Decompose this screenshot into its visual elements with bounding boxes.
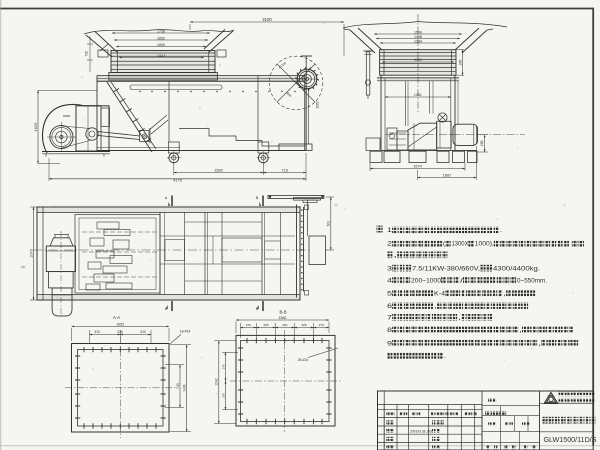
svg-text:200~1000: 200~1000	[411, 278, 441, 285]
svg-text:270: 270	[246, 323, 251, 327]
svg-text:1: 1	[387, 227, 393, 234]
svg-text:7: 7	[387, 315, 393, 322]
svg-text:6: 6	[387, 303, 393, 310]
svg-text:A-A: A-A	[113, 315, 120, 320]
svg-text:718: 718	[85, 51, 89, 57]
svg-text:1738: 1738	[157, 29, 165, 33]
svg-text:.: .	[444, 354, 446, 360]
svg-text:B: B	[256, 196, 259, 200]
svg-text:1583: 1583	[214, 169, 222, 173]
svg-text:310: 310	[94, 330, 100, 334]
svg-text:320: 320	[282, 323, 287, 327]
svg-text:1600: 1600	[157, 43, 165, 47]
svg-text:B-B: B-B	[280, 310, 287, 315]
svg-text:1294: 1294	[414, 39, 422, 43]
svg-text:1242: 1242	[215, 378, 219, 386]
svg-text:/: /	[460, 278, 463, 285]
svg-text:330: 330	[117, 330, 123, 334]
svg-text:18-#24: 18-#24	[180, 330, 191, 334]
svg-text:740: 740	[176, 383, 180, 389]
svg-text:715: 715	[281, 169, 287, 173]
svg-text:1652: 1652	[157, 36, 165, 40]
svg-text:328: 328	[301, 323, 306, 327]
svg-text:310: 310	[140, 330, 146, 334]
svg-text:#1300: #1300	[278, 61, 287, 69]
svg-text:1301: 1301	[414, 58, 422, 62]
svg-text:270: 270	[221, 392, 225, 397]
svg-text:1625: 1625	[33, 122, 38, 132]
svg-text:1361: 1361	[414, 93, 422, 97]
svg-text:1574: 1574	[413, 165, 421, 169]
svg-text:2010.8.26: 2010.8.26	[410, 430, 432, 434]
svg-text:#850: #850	[285, 91, 293, 99]
svg-text:A: A	[165, 196, 168, 200]
svg-text:5: 5	[387, 291, 393, 298]
svg-text:2: 2	[387, 241, 393, 248]
svg-text:(: (	[443, 242, 445, 248]
svg-text:8: 8	[387, 327, 393, 334]
svg-text:1436: 1436	[183, 384, 187, 392]
svg-text:7.5/11KW-380/660V,: 7.5/11KW-380/660V,	[412, 266, 480, 273]
svg-text:1436: 1436	[414, 35, 422, 39]
svg-text:1300X: 1300X	[452, 242, 469, 248]
svg-text:1070: 1070	[29, 249, 33, 257]
svg-text:1500: 1500	[414, 30, 422, 34]
svg-text:270: 270	[221, 364, 225, 369]
svg-text:245: 245	[458, 60, 462, 66]
svg-text:1060: 1060	[316, 101, 320, 108]
svg-text:4175: 4175	[173, 178, 183, 183]
svg-text:1652: 1652	[116, 323, 124, 327]
svg-text:1582: 1582	[279, 316, 287, 320]
svg-text:9: 9	[387, 341, 393, 348]
svg-text:2100: 2100	[262, 17, 272, 22]
svg-text:4: 4	[387, 278, 393, 285]
svg-text:270: 270	[319, 323, 324, 327]
svg-text:325: 325	[263, 323, 268, 327]
svg-text:0~550mm.: 0~550mm.	[517, 278, 547, 285]
svg-text:K-4: K-4	[434, 291, 445, 298]
svg-text:285: 285	[480, 140, 484, 146]
svg-text:3: 3	[387, 266, 393, 273]
svg-text:26-#24: 26-#24	[298, 358, 309, 362]
svg-text:500: 500	[327, 221, 331, 227]
svg-text:1000),: 1000),	[475, 242, 494, 248]
svg-text:4300/4400kg.: 4300/4400kg.	[493, 266, 540, 273]
svg-text:1687: 1687	[443, 174, 451, 178]
svg-text:GLW1500/11D/S: GLW1500/11D/S	[544, 435, 597, 444]
svg-text:.: .	[500, 227, 502, 234]
